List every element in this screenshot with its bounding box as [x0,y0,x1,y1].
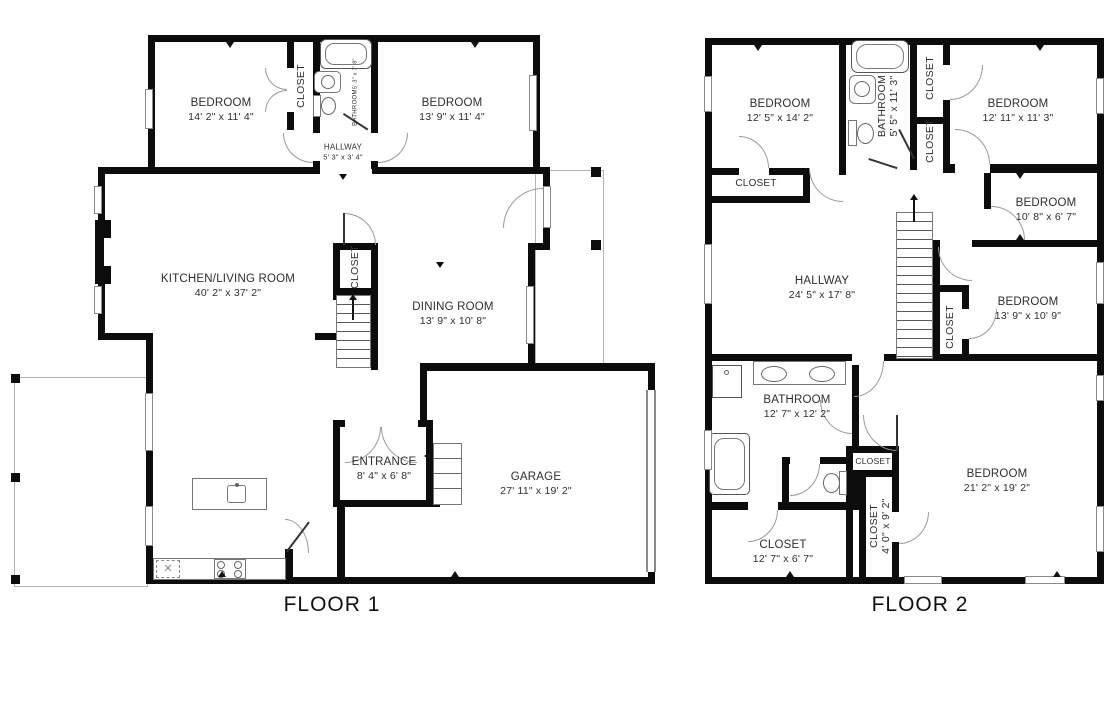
dimension-tick [436,262,444,268]
plan-element: 5' 3" x 7' 8" [353,58,359,89]
plan-element: 21' 2" x 19' 2" [964,482,1030,495]
deck-post [11,374,20,383]
plan-element [433,458,462,459]
plan-element: HALLWAY [324,143,362,152]
closet-door-arc [969,309,997,339]
hall-bath-door-arc [854,361,884,397]
plan-element: 27' 11" x 19' 2" [500,485,572,498]
plan-element: CLOSET [735,178,776,189]
room-label-closet-wing: CLOSET [295,64,307,108]
closet-door-arc [265,68,287,90]
wall [984,173,991,209]
toilet-bowl [823,473,840,493]
plan-element: 40' 2" x 37' 2" [161,287,295,300]
wall [705,502,748,510]
window [94,186,102,214]
room-label-closet-small: CLOSET [855,456,890,466]
wall [962,285,969,309]
wall [943,38,950,65]
wall [146,333,153,584]
window [543,186,551,228]
room-label-closet-top1: CLOSET [924,56,936,100]
deck-post [591,240,601,250]
plan-element [433,488,462,489]
toilet-bowl [321,97,336,115]
closet-door-arc [899,512,929,544]
window [526,286,534,344]
wall [98,167,320,174]
room-label-entrance: ENTRANCE8' 4" x 6' 8" [352,456,417,482]
wall [333,500,440,507]
floor1-title: FLOOR 1 [284,593,381,617]
plan-element: 4' 0" x 9' 2" [880,498,892,554]
room-label-hallway: HALLWAY5' 3" x 3' 4" [323,143,363,162]
room-label-bathroom: BATHROOM5' 3" x 7' 8" [353,58,360,126]
fixture [856,44,904,69]
wall [892,477,899,512]
window [1096,506,1104,552]
plan-element: BEDROOM [967,468,1028,480]
wall [839,38,846,175]
plan-element: BEDROOM [998,296,1059,308]
wall [287,42,294,68]
room-label-closet-bl: CLOSET12' 7" x 6' 7" [753,539,813,565]
fixture-detail [217,561,225,569]
wall [943,164,955,173]
plan-element: CLOSET [759,539,806,551]
window [529,75,537,131]
dimension-tick [1016,234,1024,240]
plan-element: BEDROOM [422,97,483,109]
dimension-tick [471,42,479,48]
plan-element: BATHROOM [876,75,888,137]
wall [910,124,917,170]
vanity-sink [761,366,787,382]
toilet-tank [313,95,321,117]
dimension-tick [910,194,918,200]
dimension-tick [1036,45,1044,51]
plan-element [104,238,111,266]
closet-door-arc [344,213,376,245]
plan-element: 13' 9" x 10' 8" [412,315,493,328]
door-leaf [896,415,898,451]
room-label-hallway: HALLWAY24' 5" x 17' 8" [789,275,855,301]
wall [892,542,899,577]
room-label-closet-main: CLOSET [349,245,361,289]
deck-post [11,575,20,584]
wall [778,502,853,510]
toilet-tank [848,120,857,146]
bedroom-door-arc [938,247,972,281]
room-label-closet-tall: CLOSET4' 0" x 9' 2" [868,498,892,554]
fixture-detail [235,483,239,487]
stair-arrow [913,200,915,222]
window [704,430,712,470]
dimension-tick [451,571,459,577]
plan-element: 12' 11" x 11' 3" [983,112,1054,125]
garage-steps [433,443,462,505]
plan-element: BEDROOM [1016,197,1077,209]
deck-post [11,473,20,482]
room-label-bedroom-br: BEDROOM21' 2" x 19' 2" [964,468,1030,494]
toilet-bowl [857,123,874,144]
window [904,576,942,584]
closet-door-arc [739,136,769,168]
island-sink [227,485,246,503]
room-label-dining: DINING ROOM13' 9" x 10' 8" [412,301,493,327]
wall [933,240,940,247]
wall [990,164,1104,173]
wall [285,549,293,584]
dimension-tick [754,45,762,51]
plan-element: BATHROOM [763,394,830,406]
window [145,89,153,129]
fixture-detail [724,370,729,375]
wall [910,38,917,120]
plan-element: KITCHEN/LIVING ROOM [161,273,295,285]
plan-element: CLOSET [349,245,361,289]
window [1096,375,1104,401]
room-label-bedroom-tl: BEDROOM12' 5" x 14' 2" [747,98,813,124]
plan-element: 12' 7" x 6' 7" [753,553,813,566]
dimension-tick [1053,571,1061,577]
wall [372,167,550,174]
toilet-room-door-arc [790,464,820,496]
bathroom-door-leaf [868,158,897,169]
window [704,76,712,112]
room-label-bedroom-mr: BEDROOM10' 8" x 6' 7" [1016,197,1077,223]
deck-left [14,377,148,587]
toilet-tank [839,471,847,495]
plan-element [433,473,462,474]
plan-element: 10' 8" x 6' 7" [1016,211,1077,224]
wall [648,572,655,584]
plan-element: CLOSET [855,456,890,466]
plan-element: CLOSET [924,119,936,163]
dimension-tick [1016,173,1024,179]
fixture-detail [234,570,242,578]
stairs-floor2 [896,212,933,359]
wall [420,363,655,371]
stair-arrow [352,300,354,320]
deck-post [591,167,601,177]
floorplan-image: ✕ BEDROOM14' 2" x 11' 4" CLOSET BATHROOM… [0,0,1118,703]
bedroom-door-arc [955,129,990,164]
wall [859,510,866,577]
plan-element: BEDROOM [750,98,811,110]
room-label-closet-tl: CLOSET [735,178,776,190]
bedroom-door-arc [809,168,843,202]
plan-element: CLOSET [944,305,956,349]
bedroom-door-arc [378,133,408,163]
window [704,244,712,304]
room-label-closet-mid: CLOSET [944,305,956,349]
plan-element: 12' 7" x 12' 2" [763,408,830,421]
room-label-kitchen-living: KITCHEN/LIVING ROOM40' 2" x 37' 2" [161,273,295,299]
room-label-bedroom-tl: BEDROOM14' 2" x 11' 4" [188,97,254,123]
plan-element: ENTRANCE [352,456,417,468]
room-label-bedroom-tr: BEDROOM13' 9" x 11' 4" [419,97,485,123]
closet-door-arc [265,90,287,112]
bedroom-door-arc [283,133,313,163]
plan-element: DINING ROOM [412,301,493,313]
wall [287,112,294,130]
plan-element: 13' 9" x 10' 9" [995,310,1061,323]
room-label-bathroom-top: BATHROOM5' 5" x 11' 3" [876,75,900,137]
wall [705,196,810,203]
plan-element: 5' 5" x 11' 3" [888,75,900,136]
wall [943,100,950,170]
plan-element: BATHROOM [353,89,359,126]
wall [972,240,1104,247]
window [1025,576,1065,584]
dimension-tick [218,571,226,577]
wall [420,367,427,427]
plan-element: 5' 3" x 3' 4" [323,152,363,161]
plan-element: HALLWAY [795,275,849,287]
room-label-bedroom-r: BEDROOM13' 9" x 10' 9" [995,296,1061,322]
garage-door [646,390,656,572]
room-label-garage: GARAGE27' 11" x 19' 2" [500,471,572,497]
dimension-tick [424,452,430,460]
wall [543,167,550,186]
floor2-title: FLOOR 2 [872,593,969,617]
plan-element: 12' 5" x 14' 2" [747,112,813,125]
dishwasher: ✕ [156,560,180,578]
wall [705,354,852,361]
fixture-detail [854,81,870,97]
plan-element: 8' 4" x 6' 8" [352,470,417,483]
wall [333,420,340,507]
plan-element: BEDROOM [988,98,1049,110]
wall [426,420,433,507]
room-label-bedroom-tr: BEDROOM12' 11" x 11' 3" [983,98,1054,124]
door-leaf [343,213,345,245]
wall [1097,38,1104,584]
fixture-detail [234,561,242,569]
room-label-bathroom-bottom: BATHROOM12' 7" x 12' 2" [763,394,830,420]
wall [337,500,345,584]
window [1096,78,1104,114]
plan-element: 13' 9" x 11' 4" [419,111,485,124]
wall [98,333,152,340]
dimension-tick [786,571,794,577]
closet-door-arc [748,510,778,542]
plan-element: BEDROOM [191,97,252,109]
wall [371,42,378,133]
window [145,393,153,451]
dimension-tick [339,174,347,180]
wall [371,243,378,370]
dimension-tick [226,42,234,48]
plan-element: CLOSET [868,504,880,548]
wall [712,168,739,175]
fixture-detail [321,75,335,89]
fixture [714,438,745,490]
plan-element: 24' 5" x 17' 8" [789,289,855,302]
wall [933,247,940,361]
plan-element: CLOSET [924,56,936,100]
plan-element: 14' 2" x 11' 4" [188,111,254,124]
closet-door-arc [950,65,983,100]
plan-element: CLOSET [295,64,307,108]
fixture [325,43,367,65]
vanity-sink [809,366,835,382]
room-label-closet-top2: CLOSET [924,119,936,163]
plan-element: GARAGE [511,471,561,483]
dimension-tick [349,294,357,300]
window [145,506,153,546]
deck-door-arc [503,188,543,228]
window [94,286,102,314]
wall [846,510,853,577]
window [1096,262,1104,304]
